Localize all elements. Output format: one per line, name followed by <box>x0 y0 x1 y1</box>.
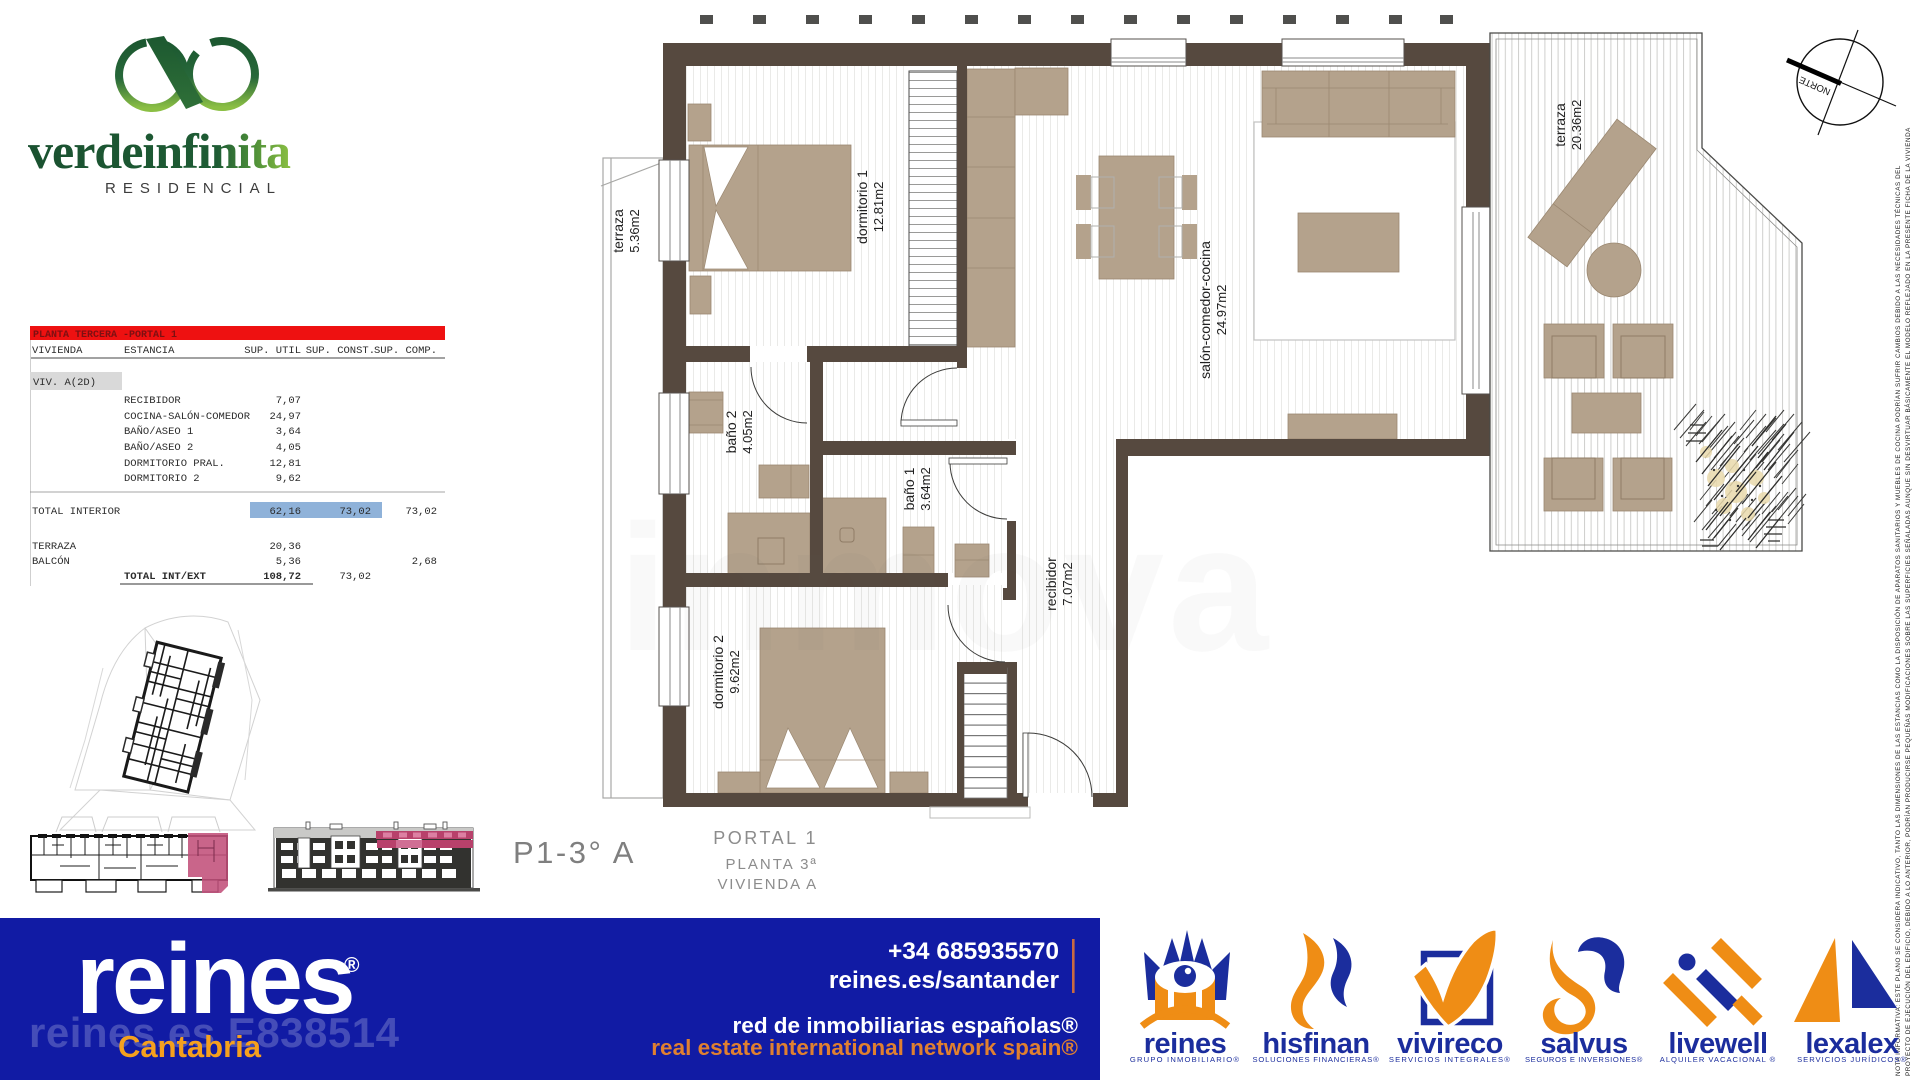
svg-text:12.81m2: 12.81m2 <box>871 182 886 233</box>
svg-text:73,02: 73,02 <box>339 571 371 583</box>
svg-text:terraza: terraza <box>610 209 626 253</box>
svg-text:terraza: terraza <box>1552 103 1568 147</box>
svg-text:24.97m2: 24.97m2 <box>1214 285 1229 336</box>
svg-text:PORTAL 1: PORTAL 1 <box>713 828 818 848</box>
svg-text:verdeinfinita: verdeinfinita <box>28 123 291 179</box>
svg-text:TOTAL INTERIOR: TOTAL INTERIOR <box>32 506 121 518</box>
svg-text:TERRAZA: TERRAZA <box>32 541 77 553</box>
svg-text:20.36m2: 20.36m2 <box>1569 100 1584 151</box>
svg-text:DORMITORIO PRAL.: DORMITORIO PRAL. <box>124 458 225 470</box>
svg-text:VIV. A(2D): VIV. A(2D) <box>33 377 96 389</box>
svg-text:5,36: 5,36 <box>276 556 301 568</box>
svg-text:73,02: 73,02 <box>405 506 437 518</box>
svg-text:20,36: 20,36 <box>269 541 301 553</box>
svg-text:baño 2: baño 2 <box>723 410 739 453</box>
svg-text:P1-3° A: P1-3° A <box>513 835 636 870</box>
svg-text:SERVICIOS JURÍDICOS®: SERVICIOS JURÍDICOS® <box>1797 1055 1907 1064</box>
svg-text:reines.es/santander: reines.es/santander <box>829 967 1060 994</box>
svg-text:reines: reines <box>76 923 353 1035</box>
svg-text:9,62: 9,62 <box>276 473 301 485</box>
svg-text:TOTAL INT/EXT: TOTAL INT/EXT <box>124 571 206 583</box>
svg-text:73,02: 73,02 <box>339 506 371 518</box>
svg-text:4.05m2: 4.05m2 <box>740 410 755 453</box>
svg-text:3,64: 3,64 <box>276 426 301 438</box>
svg-text:VIVIENDA A: VIVIENDA A <box>717 876 818 893</box>
svg-text:RECIBIDOR: RECIBIDOR <box>124 395 181 407</box>
svg-text:GRUPO INMOBILIARIO®: GRUPO INMOBILIARIO® <box>1130 1055 1240 1064</box>
svg-text:NOTA INFORMATIVA: ESTE PLANO S: NOTA INFORMATIVA: ESTE PLANO SE CONSIDER… <box>1893 165 1902 1076</box>
svg-text:+34 685935570: +34 685935570 <box>888 938 1059 965</box>
svg-text:24,97: 24,97 <box>269 411 301 423</box>
svg-text:4,05: 4,05 <box>276 442 301 454</box>
svg-text:Cantabria: Cantabria <box>118 1029 262 1064</box>
svg-text:SUP. CONST.: SUP. CONST. <box>306 345 375 357</box>
svg-text:SEGUROS E INVERSIONES®: SEGUROS E INVERSIONES® <box>1525 1055 1643 1064</box>
svg-text:RESIDENCIAL: RESIDENCIAL <box>105 180 282 197</box>
svg-text:5.36m2: 5.36m2 <box>627 209 642 252</box>
svg-text:VIVIENDA: VIVIENDA <box>32 345 83 357</box>
svg-text:BAÑO/ASEO 1: BAÑO/ASEO 1 <box>124 425 193 438</box>
svg-text:PLANTA 3ª: PLANTA 3ª <box>726 856 818 873</box>
svg-text:PROYECTO DE EJECUCIÓN DEL EDIF: PROYECTO DE EJECUCIÓN DEL EDIFICIO, DEBI… <box>1903 127 1912 1076</box>
svg-text:COCINA-SALÓN-COMEDOR: COCINA-SALÓN-COMEDOR <box>124 409 251 423</box>
svg-text:2,68: 2,68 <box>412 556 437 568</box>
svg-text:SUP. UTIL: SUP. UTIL <box>244 345 301 357</box>
svg-text:salón-comedor-cocina: salón-comedor-cocina <box>1197 241 1213 379</box>
svg-text:real estate international netw: real estate international network spain® <box>651 1035 1078 1060</box>
svg-text:ALQUILER VACACIONAL ®: ALQUILER VACACIONAL ® <box>1660 1055 1776 1064</box>
svg-text:dormitorio 1: dormitorio 1 <box>854 170 870 244</box>
svg-text:ESTANCIA: ESTANCIA <box>124 345 175 357</box>
svg-text:BALCÓN: BALCÓN <box>32 554 70 568</box>
svg-text:inmova: inmova <box>618 488 1272 689</box>
svg-text:108,72: 108,72 <box>263 571 301 583</box>
svg-text:BAÑO/ASEO 2: BAÑO/ASEO 2 <box>124 441 193 454</box>
svg-text:12,81: 12,81 <box>269 458 301 470</box>
svg-text:SERVICIOS INTEGRALES®: SERVICIOS INTEGRALES® <box>1389 1055 1511 1064</box>
svg-text:SOLUCIONES FINANCIERAS®: SOLUCIONES FINANCIERAS® <box>1253 1055 1380 1064</box>
svg-text:SUP. COMP.: SUP. COMP. <box>374 345 437 357</box>
svg-text:PLANTA TERCERA -PORTAL 1: PLANTA TERCERA -PORTAL 1 <box>33 330 177 341</box>
svg-text:62,16: 62,16 <box>269 506 301 518</box>
svg-text:®: ® <box>344 954 360 977</box>
svg-text:7,07: 7,07 <box>276 395 301 407</box>
svg-text:DORMITORIO 2: DORMITORIO 2 <box>124 473 200 485</box>
